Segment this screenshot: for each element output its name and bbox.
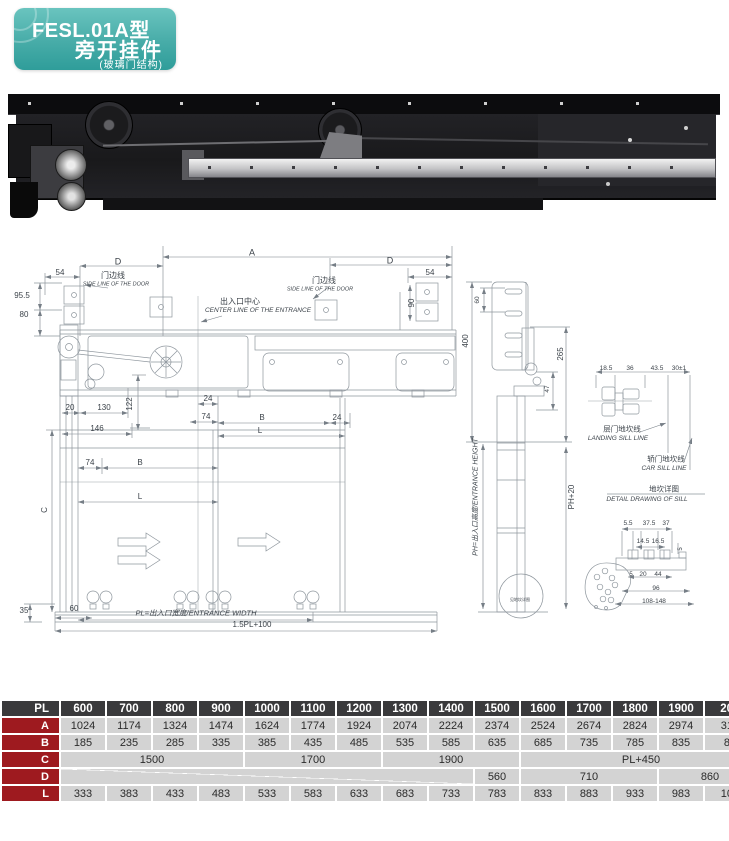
dim-label: 54 <box>56 269 65 277</box>
dim-label: 35 <box>20 607 29 615</box>
table-cell: 785 <box>613 735 657 750</box>
photo-left-pulley <box>85 101 133 149</box>
table-cell: 835 <box>659 735 703 750</box>
table-cell: 385 <box>245 735 289 750</box>
photo-screws <box>28 102 708 105</box>
product-badge: FESL.01A型 旁开挂件 (玻璃门结构) <box>14 8 176 70</box>
product-photo <box>8 90 722 228</box>
dim-label: 95.5 <box>14 292 30 300</box>
table-col-header: 600 <box>61 701 105 716</box>
dim-label: 108-148 <box>642 599 666 606</box>
table-cell: 585 <box>429 735 473 750</box>
table-cell: 883 <box>567 786 611 801</box>
dim-label: 门边线 <box>101 272 125 280</box>
table-row: D560710860 <box>2 769 729 784</box>
table-cell: 2374 <box>475 718 519 733</box>
table-cell: 560 <box>475 769 519 784</box>
dim-label: 36 <box>626 366 633 373</box>
spec-table: PL60070080090010001100120013001400150016… <box>0 699 729 803</box>
table-cell: 1174 <box>107 718 151 733</box>
table-col-header: 900 <box>199 701 243 716</box>
table-cell <box>61 769 473 784</box>
table-col-header: 700 <box>107 701 151 716</box>
dim-label: PH+20 <box>568 485 576 510</box>
dim-label: CENTER LINE OF THE ENTRANCE <box>205 308 311 315</box>
table-cell: 833 <box>521 786 565 801</box>
dim-label: 出入口中心 <box>220 298 260 306</box>
table-cell: 1900 <box>383 752 519 767</box>
table-cell: 885 <box>705 735 729 750</box>
table-col-header: 1300 <box>383 701 427 716</box>
table-row-label: A <box>2 718 59 733</box>
dim-label: C <box>41 507 49 513</box>
table-col-header: 1700 <box>567 701 611 716</box>
table-cell: 1624 <box>245 718 289 733</box>
dim-label: A <box>249 249 255 258</box>
table-row: C150017001900PL+450 <box>2 752 729 767</box>
table-cell: 535 <box>383 735 427 750</box>
table-cell: 1033 <box>705 786 729 801</box>
drawing-linework <box>0 238 729 700</box>
dim-label: 14.5 <box>637 539 650 546</box>
dim-label: 74 <box>86 459 95 467</box>
table-cell: PL+450 <box>521 752 729 767</box>
dim-label: 47 <box>545 385 552 392</box>
table-cell: 2824 <box>613 718 657 733</box>
dim-label: 37 <box>662 521 669 528</box>
table-row: B185235285335385435485535585635685735785… <box>2 735 729 750</box>
table-corner-header: PL <box>2 701 59 716</box>
dim-label: 层门地坎线 <box>603 425 641 433</box>
table-cell: 983 <box>659 786 703 801</box>
dim-label: 74 <box>202 413 211 421</box>
table-cell: 733 <box>429 786 473 801</box>
dim-label: B <box>137 459 142 467</box>
dim-label: 43.5 <box>651 366 664 373</box>
dim-label: 30±1 <box>672 366 686 373</box>
table-cell: 685 <box>521 735 565 750</box>
table-col-header: 1500 <box>475 701 519 716</box>
table-cell: 185 <box>61 735 105 750</box>
dim-label: 96 <box>652 586 659 593</box>
table-col-header: 1100 <box>291 701 335 716</box>
dim-label: 400 <box>462 334 470 347</box>
table-cell: 3124 <box>705 718 729 733</box>
table-col-header: 1400 <box>429 701 473 716</box>
dim-label: 54 <box>426 269 435 277</box>
dim-label: 146 <box>90 425 103 433</box>
dim-label: 44 <box>654 572 661 579</box>
dim-label: CAR SILL LINE <box>641 466 686 473</box>
dim-label: 20 <box>66 404 75 412</box>
dim-label: 18.5 <box>600 366 613 373</box>
dim-label: 130 <box>97 404 110 412</box>
table-row-label: D <box>2 769 59 784</box>
dim-label: DETAIL DRAWING OF SILL <box>606 497 687 504</box>
table-cell: 533 <box>245 786 289 801</box>
table-cell: 860 <box>659 769 729 784</box>
table-cell: 783 <box>475 786 519 801</box>
table-cell: 433 <box>153 786 197 801</box>
table-cell: 710 <box>521 769 657 784</box>
photo-roller-icon <box>55 149 87 181</box>
table-cell: 635 <box>475 735 519 750</box>
dim-label: 5.5 <box>623 521 632 528</box>
dim-label: 轿门地坎线 <box>647 455 685 463</box>
photo-screw-dot <box>628 138 632 142</box>
table-col-header: 1200 <box>337 701 381 716</box>
dim-label: 5 <box>629 572 632 578</box>
table-cell: 1924 <box>337 718 381 733</box>
table-row: A102411741324147416241774192420742224237… <box>2 718 729 733</box>
table-cell: 335 <box>199 735 243 750</box>
table-cell: 285 <box>153 735 197 750</box>
dim-label: L <box>138 493 142 501</box>
dim-label: 5 <box>678 547 684 550</box>
dim-label: 1.5PL+100 <box>233 621 272 629</box>
table-row: L333383433483533583633683733783833883933… <box>2 786 729 801</box>
dim-label: SIDE LINE OF THE DOOR <box>83 282 149 288</box>
table-cell: 1024 <box>61 718 105 733</box>
table-cell: 235 <box>107 735 151 750</box>
dim-label: 20 <box>639 572 646 579</box>
dim-label: 24 <box>333 414 342 422</box>
dim-label: 16.5 <box>652 539 665 546</box>
table-cell: 1500 <box>61 752 243 767</box>
spec-table-section: PL60070080090010001100120013001400150016… <box>0 699 729 803</box>
dim-label: 90 <box>408 299 416 308</box>
table-cell: 933 <box>613 786 657 801</box>
dim-label: 60 <box>475 296 482 303</box>
dim-label: 80 <box>20 311 29 319</box>
dim-label: SIDE LINE OF THE DOOR <box>287 287 353 293</box>
dim-label: PL=出入口宽度/ENTRANCE WIDTH <box>135 609 256 617</box>
dim-label: 地坎详图 <box>649 485 679 493</box>
product-subtitle: (玻璃门结构) <box>99 56 163 70</box>
dim-label: 265 <box>557 347 565 360</box>
table-col-header: 1000 <box>245 701 289 716</box>
table-cell: 1700 <box>245 752 381 767</box>
photo-rail-bolts <box>208 166 698 169</box>
table-cell: 1474 <box>199 718 243 733</box>
table-cell: 2224 <box>429 718 473 733</box>
photo-screw-dot <box>684 126 688 130</box>
table-cell: 2074 <box>383 718 427 733</box>
photo-roller-icon <box>57 182 86 211</box>
dim-label: L <box>258 427 262 435</box>
dim-label: 60 <box>70 605 79 613</box>
photo-screw-dot <box>606 182 610 186</box>
dim-label: 门边线 <box>312 277 336 285</box>
dim-label: PH=出入口高度/ENTRANCE HEIGHT <box>473 438 480 556</box>
table-cell: 633 <box>337 786 381 801</box>
photo-hook <box>10 182 38 218</box>
table-col-header: 1900 <box>659 701 703 716</box>
table-cell: 2524 <box>521 718 565 733</box>
dim-label: 37.5 <box>643 521 656 528</box>
table-cell: 2974 <box>659 718 703 733</box>
technical-drawing: AD54门边线SIDE LINE OF THE DOOR95.580出入口中心C… <box>0 238 729 700</box>
table-cell: 683 <box>383 786 427 801</box>
dim-label: D <box>387 257 394 266</box>
table-col-header: 1800 <box>613 701 657 716</box>
table-cell: 483 <box>199 786 243 801</box>
dim-label: 122 <box>126 397 134 410</box>
table-cell: 2674 <box>567 718 611 733</box>
table-cell: 435 <box>291 735 335 750</box>
dim-label: 见地坎详图 <box>510 598 530 602</box>
table-row-label: L <box>2 786 59 801</box>
table-row-label: B <box>2 735 59 750</box>
table-cell: 1774 <box>291 718 335 733</box>
table-cell: 485 <box>337 735 381 750</box>
table-col-header: 1600 <box>521 701 565 716</box>
table-cell: 583 <box>291 786 335 801</box>
dim-label: D <box>115 258 122 267</box>
table-cell: 1324 <box>153 718 197 733</box>
table-cell: 383 <box>107 786 151 801</box>
datasheet-page: FESL.01A型 旁开挂件 (玻璃门结构) <box>0 0 729 841</box>
photo-lower-step <box>103 198 543 210</box>
dim-label: B <box>259 414 264 422</box>
table-col-header: 2000 <box>705 701 729 716</box>
dim-label: LANDING SILL LINE <box>588 436 648 443</box>
table-cell: 735 <box>567 735 611 750</box>
table-col-header: 800 <box>153 701 197 716</box>
table-row-label: C <box>2 752 59 767</box>
dim-label: 24 <box>204 395 213 403</box>
table-cell: 333 <box>61 786 105 801</box>
